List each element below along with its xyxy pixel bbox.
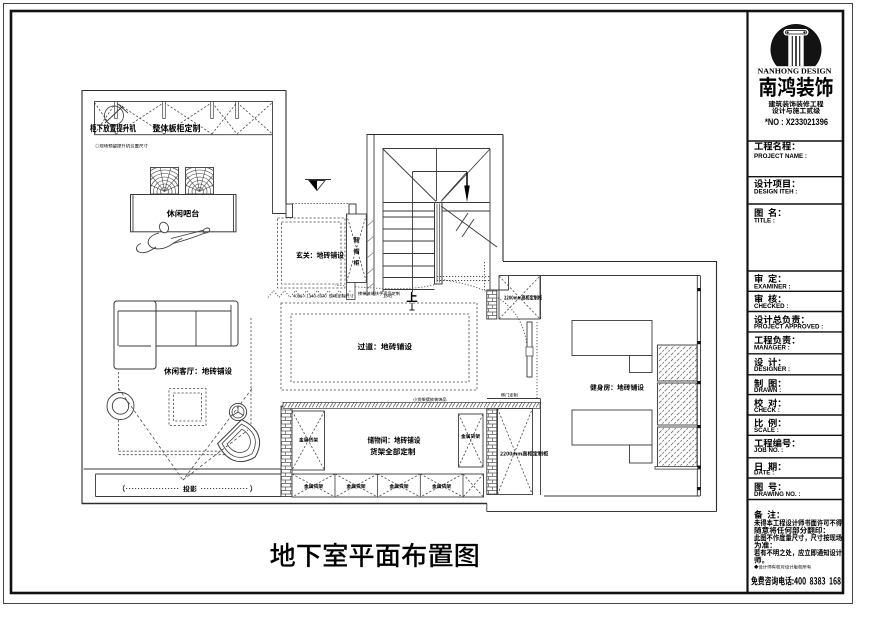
svg-text:DRAWN :: DRAWN : — [754, 387, 781, 394]
svg-text:*NO : X233021396: *NO : X233021396 — [765, 117, 828, 127]
svg-text:PROJECT APPROVED :: PROJECT APPROVED : — [754, 324, 823, 331]
svg-text:CHECKED :: CHECKED : — [754, 303, 788, 310]
svg-text:DESIGN ITEH :: DESIGN ITEH : — [754, 188, 797, 195]
svg-text:DESIGNER :: DESIGNER : — [754, 366, 790, 373]
svg-text:MANAGER :: MANAGER : — [754, 345, 790, 352]
svg-text:EXAMINER :: EXAMINER : — [754, 283, 790, 290]
svg-text:JOB NO. :: JOB NO. : — [754, 447, 783, 454]
svg-text:DATE :: DATE : — [754, 470, 774, 477]
svg-text:TITLE :: TITLE : — [754, 217, 775, 224]
svg-text:DRAWING NO. :: DRAWING NO. : — [754, 491, 800, 498]
svg-text:NANHONG DESIGN: NANHONG DESIGN — [758, 67, 833, 75]
svg-text:CHECK :: CHECK : — [754, 407, 780, 414]
svg-text:SCALE :: SCALE : — [754, 427, 779, 434]
svg-text:PROJECT NAME :: PROJECT NAME : — [754, 153, 807, 160]
